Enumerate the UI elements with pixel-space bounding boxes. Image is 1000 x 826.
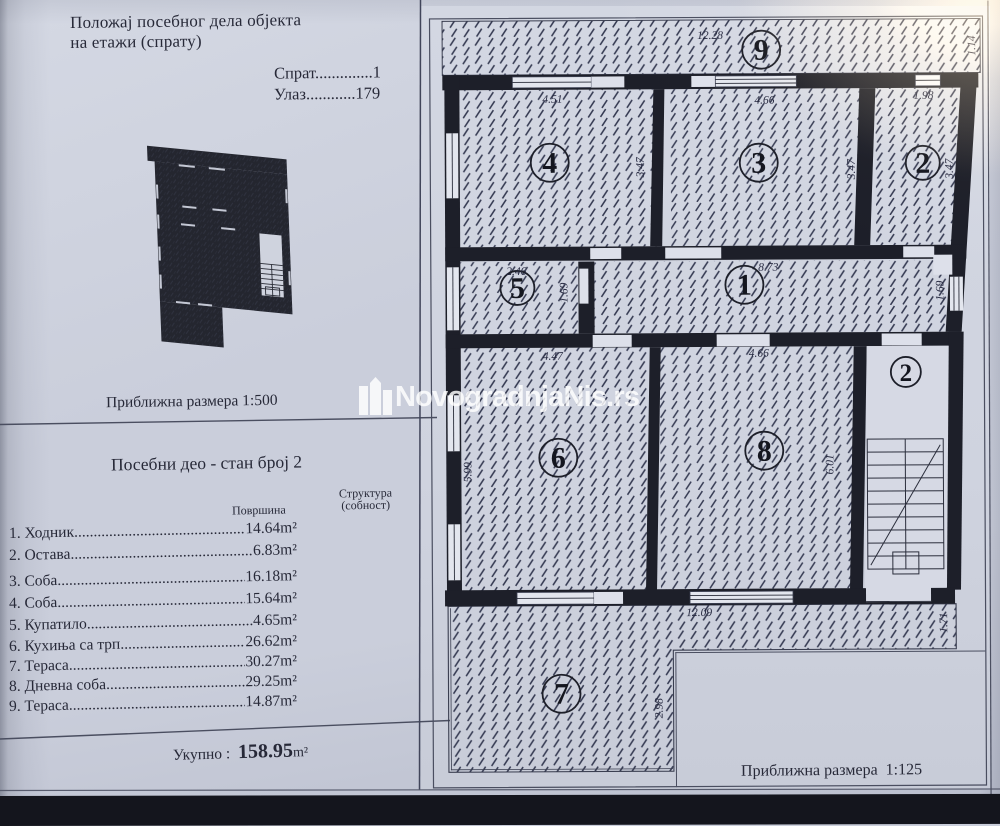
svg-text:4.47: 4.47 [543, 351, 564, 363]
svg-text:5.99: 5.99 [462, 462, 474, 482]
svg-text:1: 1 [737, 269, 752, 302]
svg-text:4.51: 4.51 [542, 94, 562, 106]
svg-text:1.69: 1.69 [558, 282, 570, 302]
svg-text:8: 8 [757, 435, 772, 468]
svg-text:4.66: 4.66 [754, 95, 774, 107]
svg-text:1.71: 1.71 [938, 613, 950, 633]
svg-text:1.14: 1.14 [966, 35, 978, 55]
svg-text:8.73: 8.73 [758, 262, 778, 274]
svg-text:3.47: 3.47 [635, 156, 647, 178]
svg-text:6.01: 6.01 [824, 454, 836, 474]
svg-text:6: 6 [551, 442, 566, 475]
svg-text:4: 4 [542, 147, 557, 180]
svg-text:1.98: 1.98 [913, 90, 933, 102]
svg-text:12.09: 12.09 [686, 607, 712, 619]
svg-text:4.66: 4.66 [749, 348, 769, 360]
svg-text:3.47: 3.47 [846, 158, 858, 180]
svg-text:3: 3 [751, 147, 766, 180]
svg-text:7: 7 [554, 678, 569, 711]
svg-text:12.28: 12.28 [697, 30, 723, 42]
svg-text:1.69: 1.69 [934, 280, 946, 300]
svg-text:9: 9 [754, 34, 769, 67]
svg-text:2: 2 [900, 360, 913, 387]
svg-text:2.46: 2.46 [506, 266, 526, 278]
svg-text:2: 2 [915, 147, 930, 180]
svg-text:3.47: 3.47 [944, 157, 956, 179]
svg-text:2.98: 2.98 [654, 698, 666, 718]
